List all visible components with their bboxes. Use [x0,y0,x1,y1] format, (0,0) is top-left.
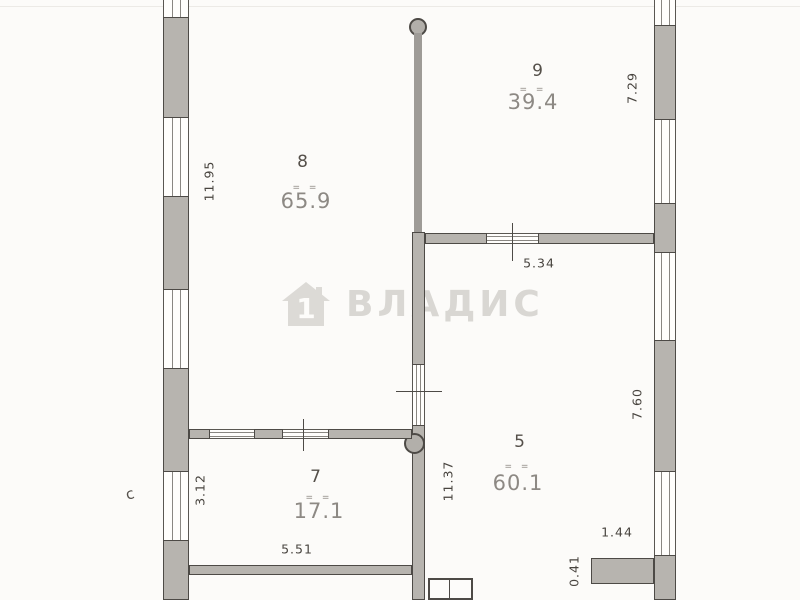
room-number-7: 7 [310,467,322,487]
window-symbol [654,472,676,555]
wall-left-outer [163,368,189,472]
wall-right-outer [654,555,676,600]
room-number-8: 8 [297,152,309,172]
window-symbol [654,253,676,340]
dim-label-0-41: 0.41 [567,555,582,587]
door-opening-symbol [412,365,425,425]
wall-center-thin [414,33,422,232]
dimension-tick [303,419,304,451]
dim-label-11-37: 11.37 [441,461,456,502]
dimension-tick [512,223,513,261]
dim-label-1-44: 1.44 [601,525,633,540]
window-symbol [210,429,254,439]
house-1-icon: 1 [280,280,332,328]
dim-label-5-34: 5.34 [523,256,555,271]
dim-label-11-95: 11.95 [202,161,217,202]
wall-right-outer [654,340,676,472]
steps-symbol [428,578,473,600]
window-symbol [654,120,676,203]
window-symbol [163,472,189,540]
wall-right-outer [654,203,676,253]
wall-left-outer [163,17,189,118]
floor-plan: 1 ВЛАДИС 9 = = 39.4 8 = = [0,0,800,600]
wall-room9-room5 [538,233,654,244]
pen-mark: c [124,484,137,504]
window-symbol [163,290,189,368]
scan-edge-line [0,6,800,7]
room-number-9: 9 [532,61,544,81]
room-area-8: 65.9 [281,189,332,213]
wall-center [412,232,425,365]
window-symbol [163,0,189,17]
window-symbol [163,118,189,196]
wall-room8-room7 [328,429,412,439]
watermark-digit: 1 [296,292,315,325]
dim-label-7-29: 7.29 [625,72,640,104]
room-area-9: 39.4 [508,90,559,114]
wall-room8-room7 [189,429,210,439]
room-area-5: 60.1 [493,471,544,495]
wall-room8-room7 [254,429,283,439]
room-number-5: 5 [514,432,526,452]
dimension-tick [396,391,442,392]
wall-room9-room5 [425,233,487,244]
wall-stub-bottom-right [591,558,654,584]
window-symbol [283,429,328,439]
wall-left-outer [163,196,189,290]
watermark-brand: ВЛАДИС [346,284,544,325]
wall-right-outer [654,25,676,120]
dim-label-3-12: 3.12 [193,474,208,506]
wall-left-outer [163,540,189,600]
dim-label-7-60: 7.60 [630,388,645,420]
dim-label-5-51: 5.51 [281,542,313,557]
wall-room7-bottom [189,565,412,575]
room-area-7: 17.1 [294,499,345,523]
window-symbol [654,0,676,25]
